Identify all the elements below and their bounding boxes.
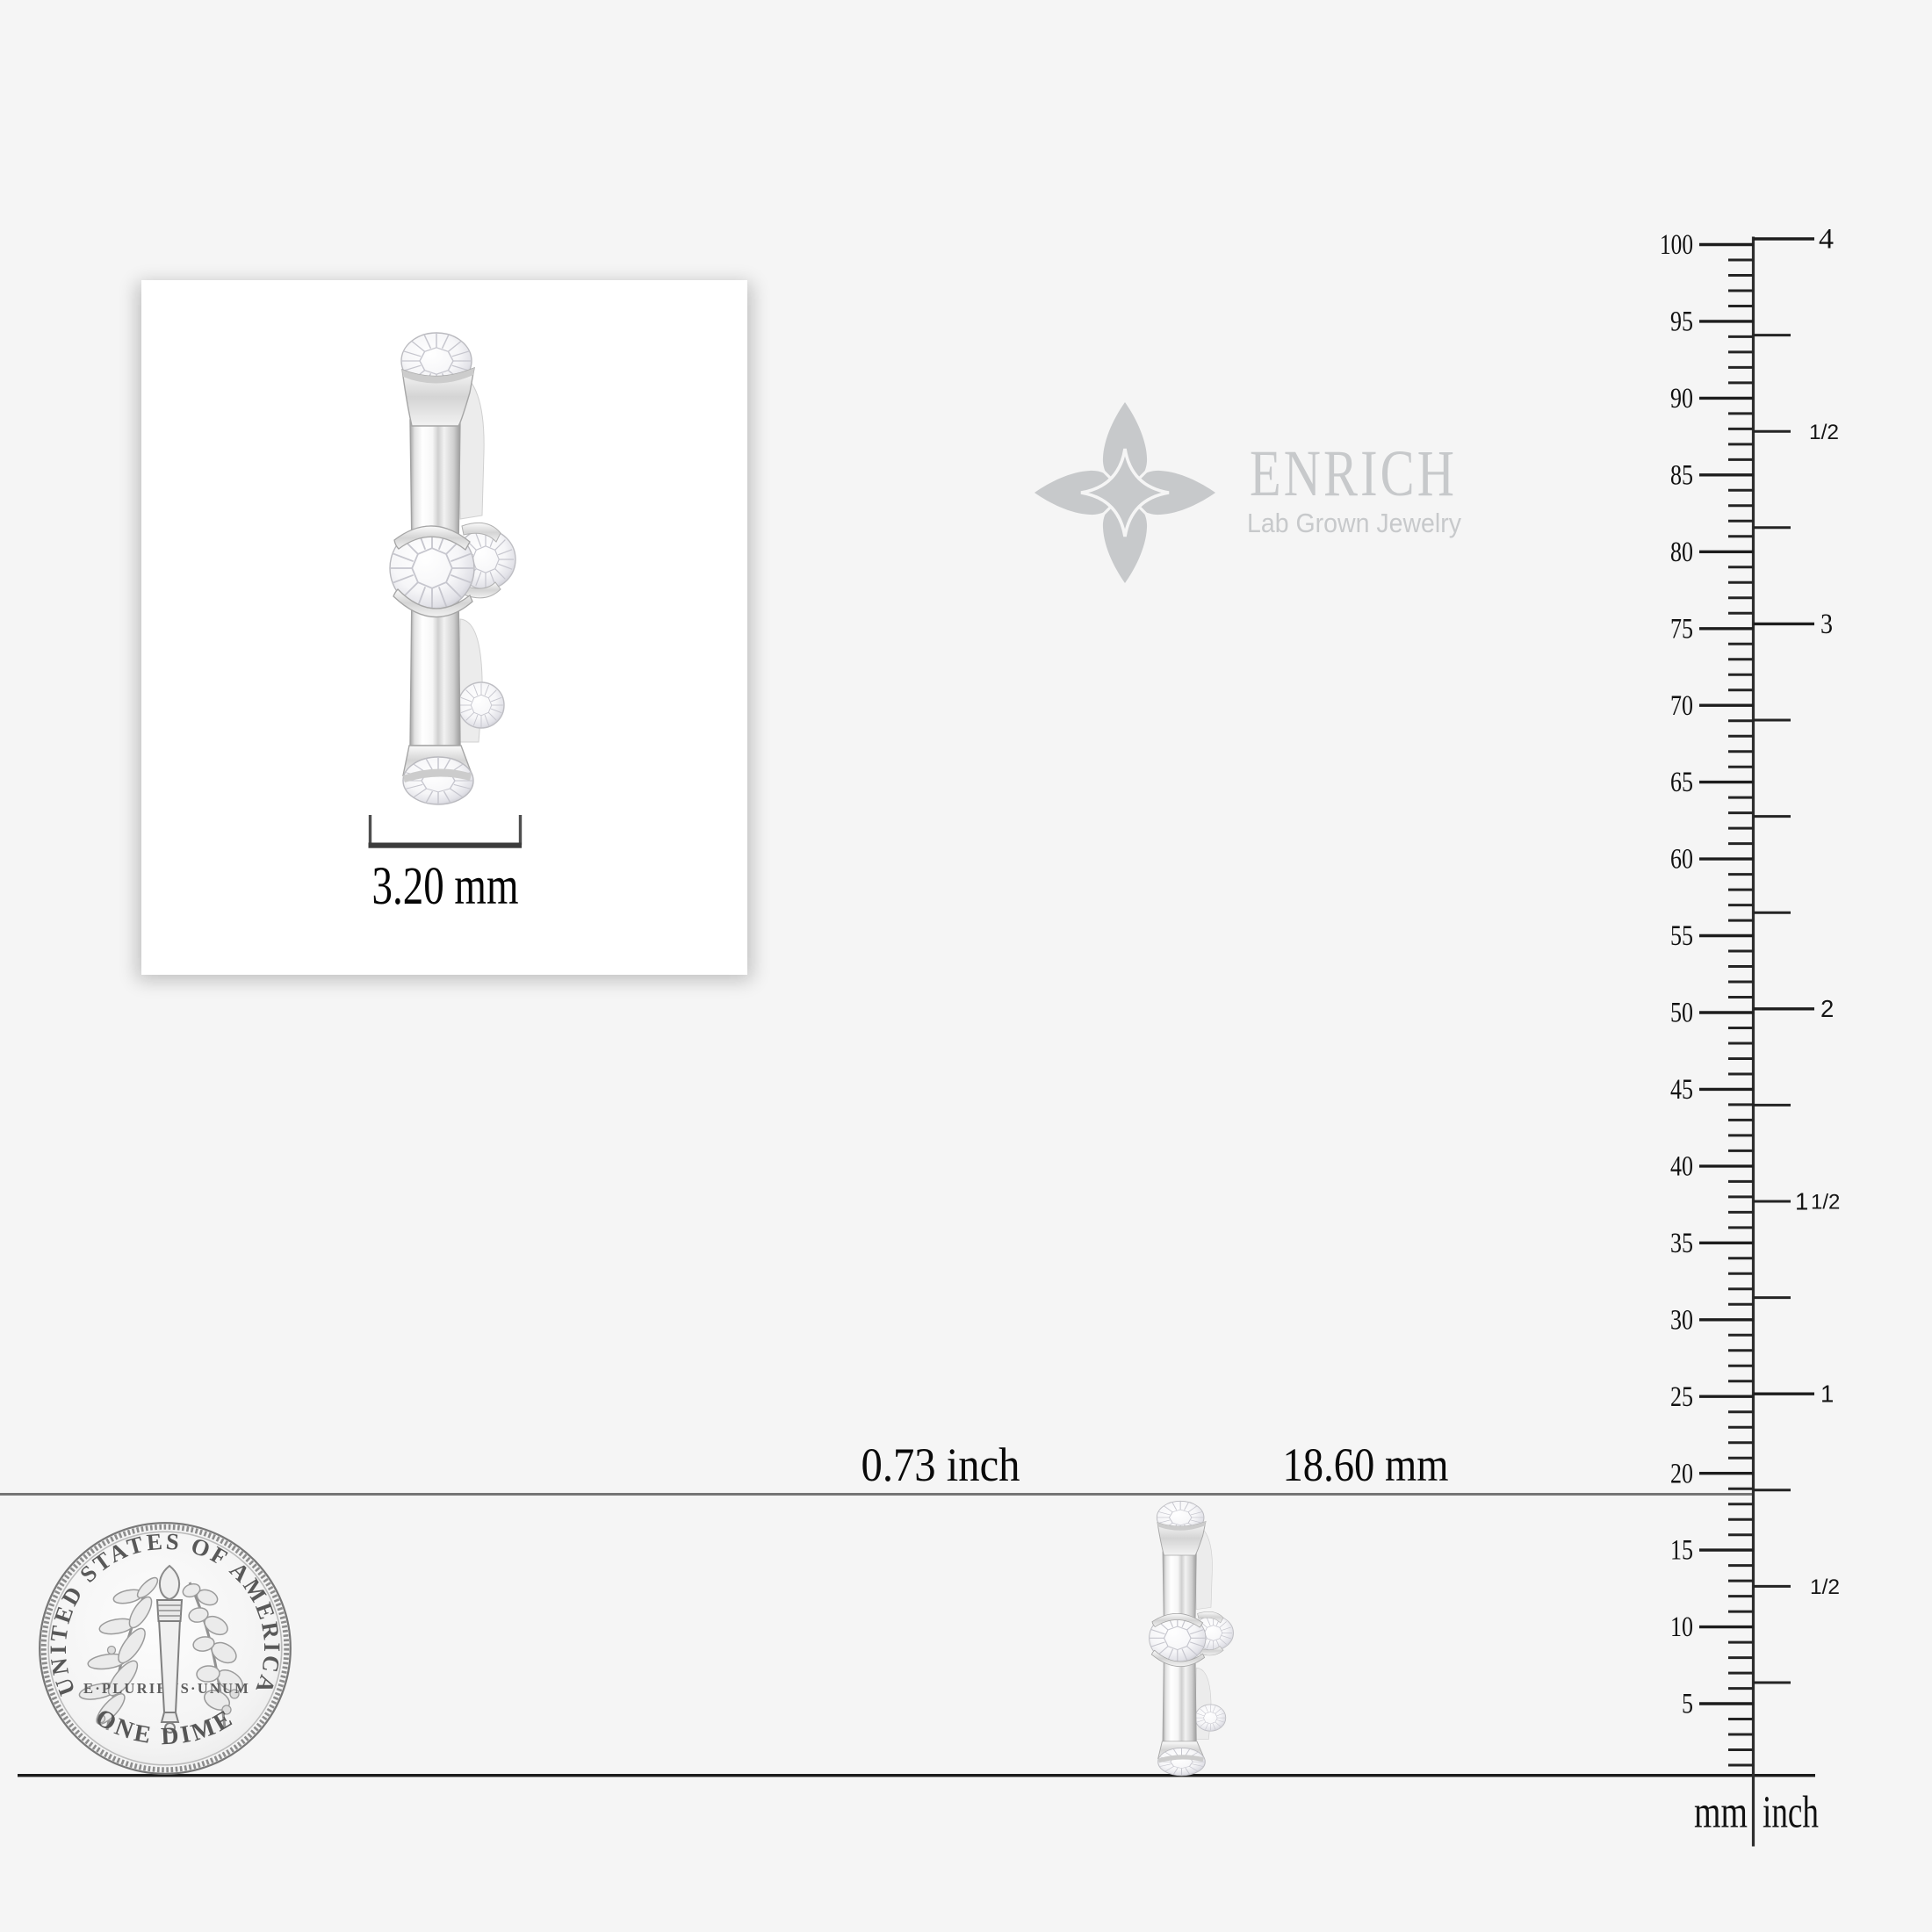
svg-text:75: 75 — [1670, 613, 1693, 645]
svg-text:1: 1 — [1820, 1381, 1834, 1408]
svg-text:35: 35 — [1670, 1228, 1693, 1259]
svg-text:10: 10 — [1670, 1611, 1693, 1643]
svg-text:90: 90 — [1670, 383, 1693, 415]
svg-text:1: 1 — [1795, 1187, 1808, 1215]
svg-text:30: 30 — [1670, 1304, 1693, 1336]
svg-text:mm: mm — [1694, 1788, 1748, 1838]
svg-text:15: 15 — [1670, 1535, 1693, 1567]
svg-text:55: 55 — [1670, 920, 1693, 952]
svg-text:Lab Grown Jewelry: Lab Grown Jewelry — [1247, 508, 1461, 538]
svg-text:4: 4 — [1819, 224, 1834, 256]
svg-text:ENRICH: ENRICH — [1250, 437, 1457, 510]
svg-text:1/2: 1/2 — [1811, 1191, 1840, 1215]
svg-text:45: 45 — [1670, 1074, 1693, 1106]
svg-text:inch: inch — [1763, 1788, 1819, 1838]
svg-text:25: 25 — [1670, 1381, 1693, 1413]
svg-text:60: 60 — [1670, 844, 1693, 876]
svg-text:70: 70 — [1670, 690, 1693, 722]
svg-text:1/2: 1/2 — [1809, 421, 1839, 444]
svg-text:85: 85 — [1670, 459, 1693, 491]
svg-text:95: 95 — [1670, 306, 1693, 338]
svg-text:0.73 inch: 0.73 inch — [861, 1438, 1020, 1491]
svg-text:2: 2 — [1820, 995, 1834, 1022]
svg-text:80: 80 — [1670, 537, 1693, 568]
svg-text:20: 20 — [1670, 1458, 1693, 1489]
svg-text:18.60 mm: 18.60 mm — [1283, 1438, 1449, 1491]
svg-text:5: 5 — [1682, 1689, 1693, 1720]
svg-text:40: 40 — [1670, 1151, 1693, 1183]
svg-text:65: 65 — [1670, 767, 1693, 798]
svg-text:100: 100 — [1660, 229, 1693, 261]
svg-text:1/2: 1/2 — [1810, 1575, 1840, 1599]
svg-text:3.20 mm: 3.20 mm — [372, 857, 519, 916]
svg-text:3: 3 — [1820, 609, 1833, 640]
svg-text:50: 50 — [1670, 998, 1693, 1029]
